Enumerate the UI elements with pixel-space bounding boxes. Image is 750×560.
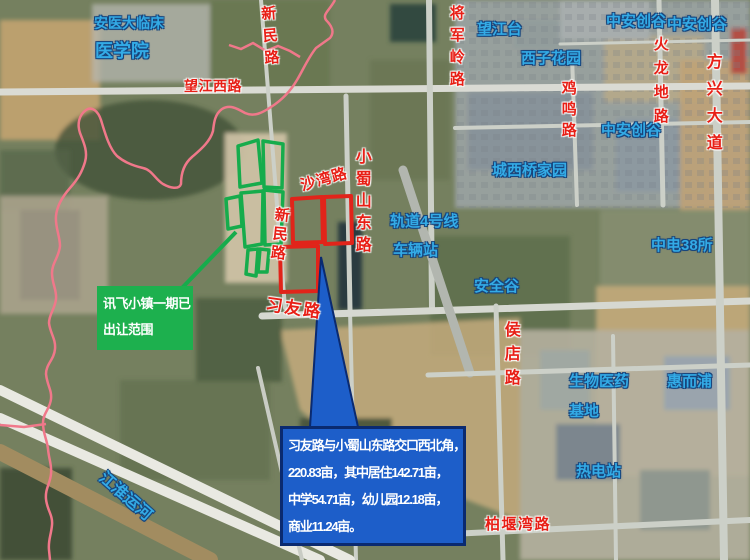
place-label: 基地: [569, 404, 599, 420]
place-label: 中电38所: [651, 238, 713, 254]
place-label: 车辆站: [393, 243, 438, 259]
place-label: 医学院: [95, 42, 149, 61]
satellite-map: 安医大临床医学院望江台西子花园中安创谷中安创谷中安创谷城西桥家园轨道4号线车辆站…: [0, 0, 750, 560]
road-label: 将军岭路: [448, 5, 464, 93]
road-label: 新民路: [268, 206, 290, 264]
blue-callout-line4: 商业11.24亩。: [288, 513, 463, 540]
blue-callout-line2: 220.83亩，其中居住142.71亩，: [288, 459, 463, 486]
place-label: 江淮运河: [95, 470, 154, 525]
road-label: 新民路: [259, 5, 279, 72]
green-callout-line2: 出让范围: [103, 317, 193, 343]
road-label: 火龙地路: [652, 36, 668, 132]
place-label: 望江台: [477, 22, 522, 38]
blue-callout-line3: 中学54.71亩，幼儿园12.18亩，: [288, 486, 463, 513]
road-label: 侯店路: [501, 321, 518, 393]
place-label: 生物医药: [569, 374, 629, 390]
place-label: 安医大临床: [94, 16, 164, 31]
road-label: 小蜀山东路: [352, 148, 369, 258]
road-label: 沙湾路: [299, 166, 349, 194]
green-callout: 讯飞小镇一期已 出让范围: [97, 286, 193, 350]
road-label: 鸡鸣路: [560, 80, 576, 143]
place-label: 安全谷: [474, 279, 519, 295]
road-label: 望江西路: [184, 79, 242, 94]
blue-callout: 习友路与小蜀山东路交口西北角， 220.83亩，其中居住142.71亩， 中学5…: [280, 426, 466, 546]
road-label: 方兴大道: [703, 53, 720, 161]
green-callout-line1: 讯飞小镇一期已: [103, 291, 193, 317]
place-label: 热电站: [576, 464, 621, 480]
blue-callout-line1: 习友路与小蜀山东路交口西北角，: [288, 432, 463, 459]
place-label: 城西桥家园: [492, 163, 567, 179]
place-label: 惠而浦: [667, 374, 712, 390]
place-label: 中安创谷: [667, 17, 727, 33]
place-label: 西子花园: [521, 51, 581, 67]
road-label: 习友路: [265, 296, 324, 322]
place-label: 中安创谷: [606, 14, 666, 30]
road-label: 柏堰湾路: [485, 517, 551, 533]
place-label: 轨道4号线: [390, 214, 458, 230]
